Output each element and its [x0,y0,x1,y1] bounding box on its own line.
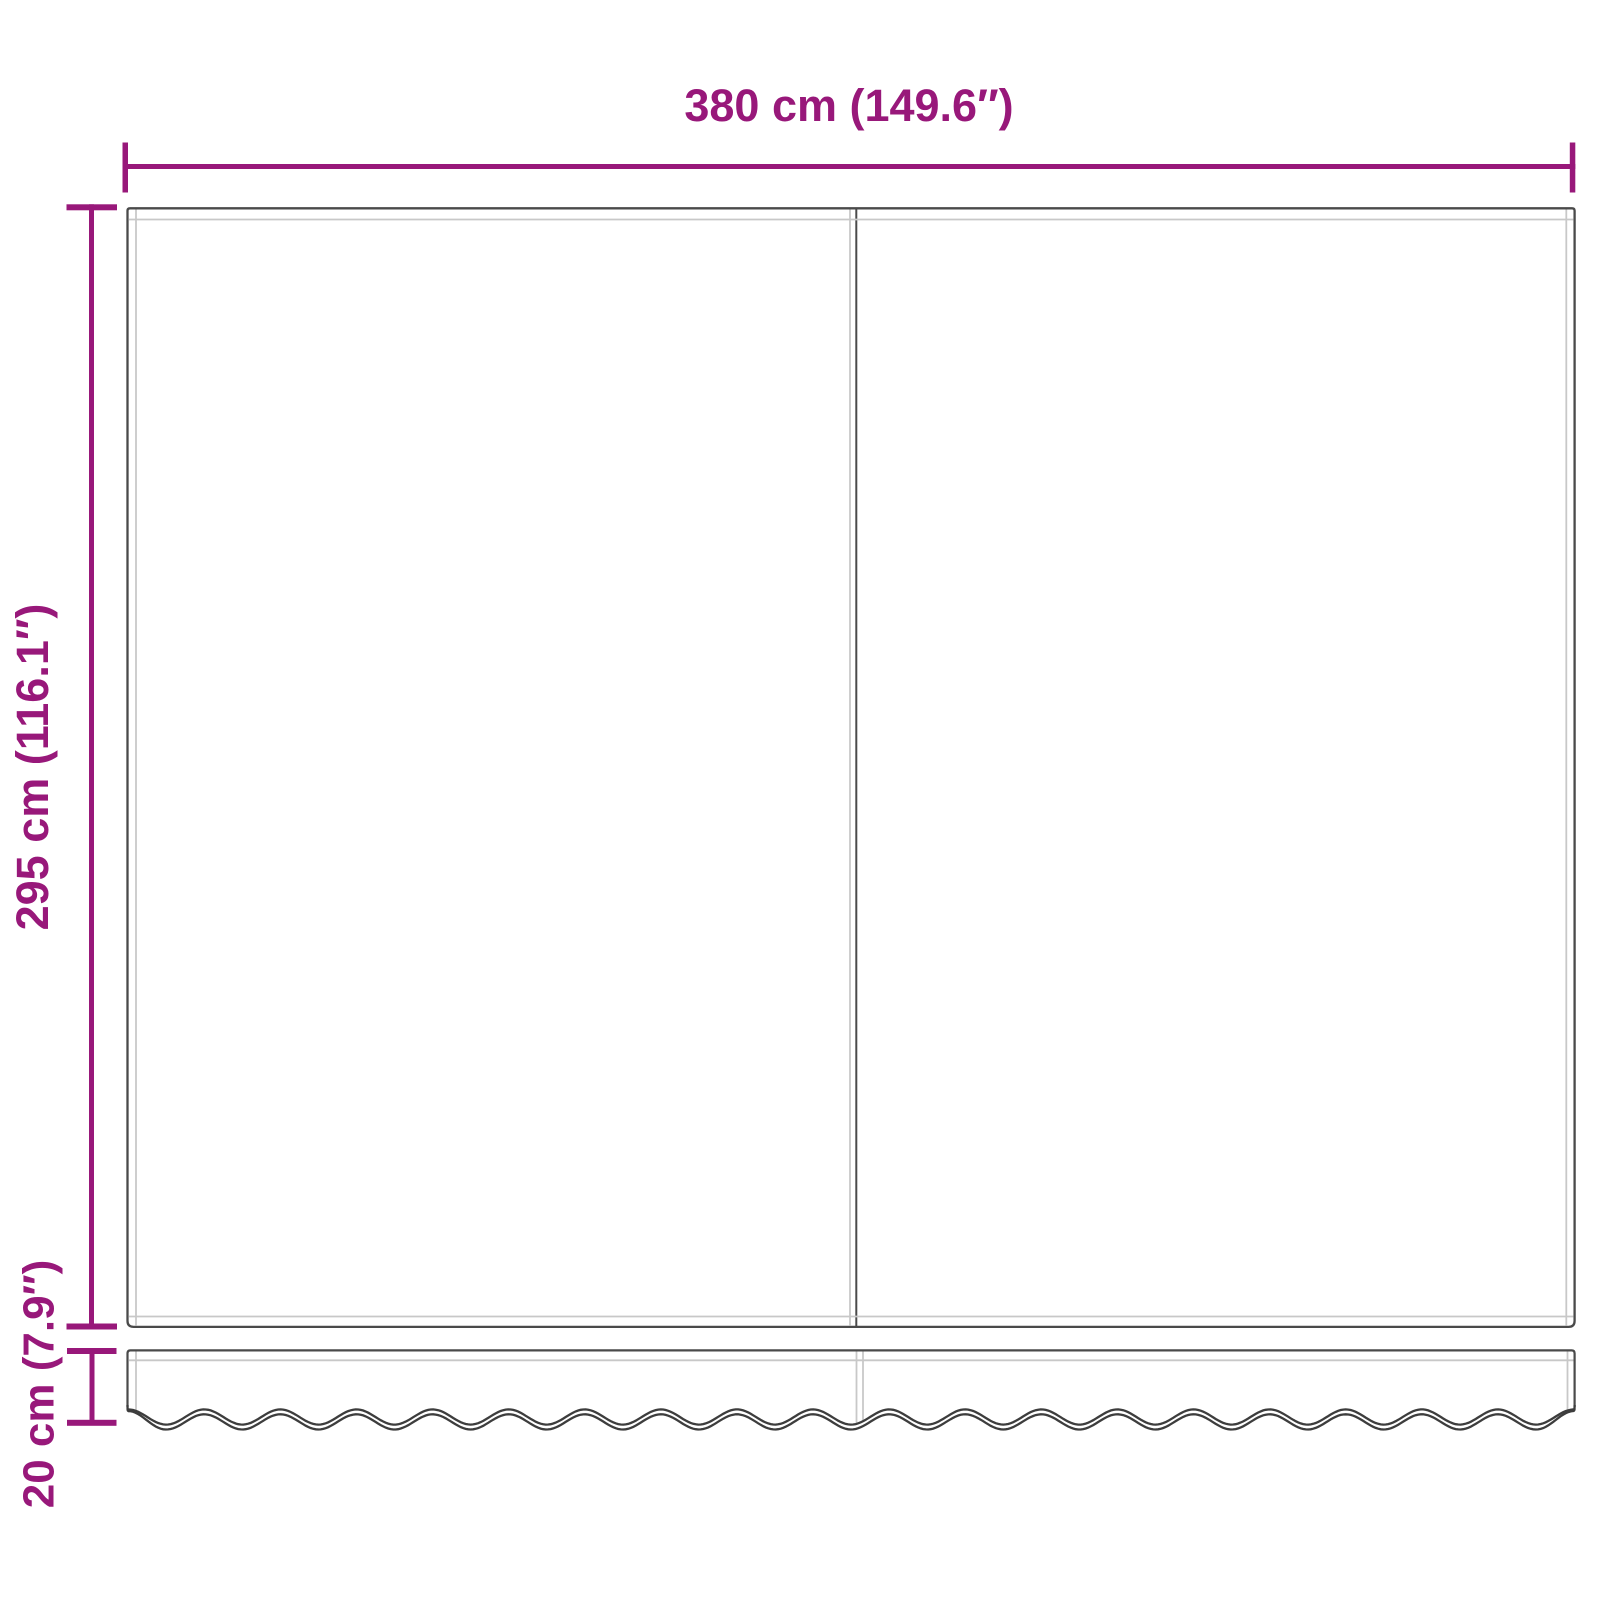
svg-text:380 cm (149.6″): 380 cm (149.6″) [684,80,1013,131]
svg-text:295 cm (116.1″): 295 cm (116.1″) [7,604,58,931]
svg-text:20 cm (7.9″): 20 cm (7.9″) [15,1260,64,1509]
